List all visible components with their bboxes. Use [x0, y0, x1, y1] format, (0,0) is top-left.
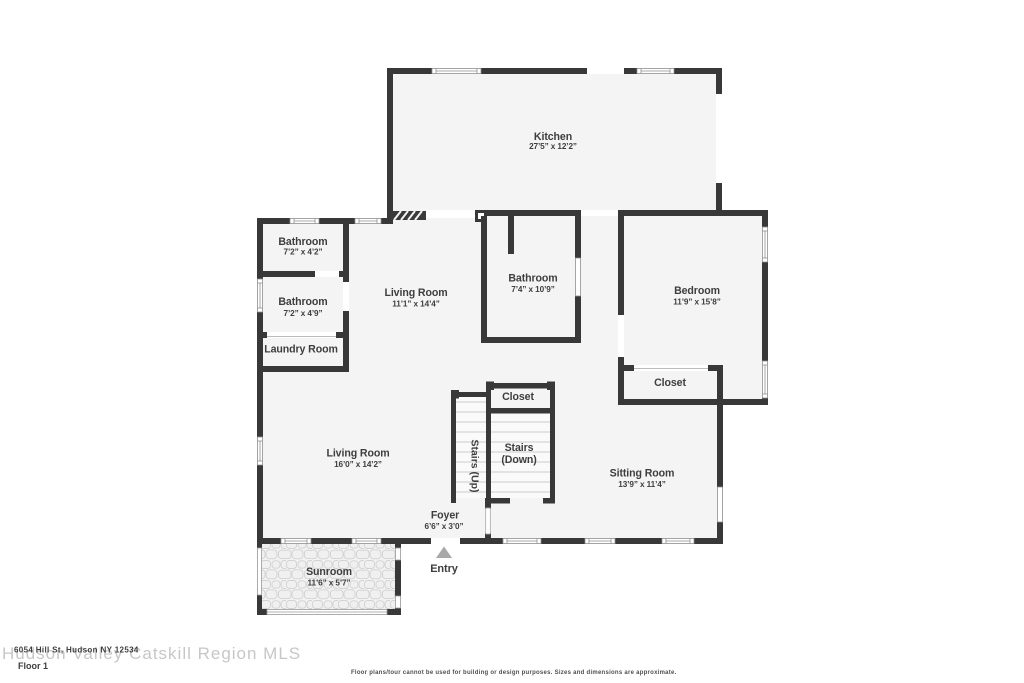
svg-text:Floor 1: Floor 1 — [18, 661, 48, 671]
svg-text:11’9” x 15’8”: 11’9” x 15’8” — [673, 298, 720, 307]
svg-text:13’9” x 11’4”: 13’9” x 11’4” — [618, 480, 665, 489]
svg-text:11’1” x 14’4”: 11’1” x 14’4” — [392, 300, 439, 309]
svg-text:6’6” x 3’0”: 6’6” x 3’0” — [425, 522, 464, 531]
svg-text:Bathroom: Bathroom — [508, 273, 557, 285]
svg-text:Living Room: Living Room — [384, 287, 447, 299]
svg-text:7’2” x 4’9”: 7’2” x 4’9” — [284, 309, 323, 318]
svg-text:7’2” x 4’2”: 7’2” x 4’2” — [284, 248, 323, 257]
svg-text:Stairs (Up): Stairs (Up) — [469, 439, 481, 492]
svg-text:Bathroom: Bathroom — [278, 296, 327, 308]
svg-text:Bathroom: Bathroom — [278, 236, 327, 248]
svg-text:Bedroom: Bedroom — [674, 285, 720, 297]
svg-text:Closet: Closet — [654, 377, 686, 389]
svg-text:Entry: Entry — [430, 563, 459, 575]
svg-text:Floor plans/tour cannot be use: Floor plans/tour cannot be used for buil… — [351, 670, 677, 676]
svg-text:Sitting Room: Sitting Room — [610, 468, 675, 480]
svg-text:Foyer: Foyer — [431, 510, 459, 522]
svg-text:Stairs: Stairs — [505, 442, 534, 454]
svg-text:Laundry Room: Laundry Room — [264, 344, 338, 356]
svg-text:(Down): (Down) — [501, 454, 536, 466]
svg-text:Closet: Closet — [502, 391, 534, 403]
svg-text:6054 Hill St, Hudson NY 12534: 6054 Hill St, Hudson NY 12534 — [14, 646, 139, 655]
svg-text:27’5” x 12’2”: 27’5” x 12’2” — [529, 142, 577, 151]
svg-text:Living Room: Living Room — [326, 448, 389, 460]
svg-text:11’6” x 5’7”: 11’6” x 5’7” — [308, 579, 351, 588]
svg-text:Sunroom: Sunroom — [306, 566, 352, 578]
svg-text:16’0” x 14’2”: 16’0” x 14’2” — [334, 460, 382, 469]
svg-text:7’4” x 10’9”: 7’4” x 10’9” — [511, 285, 554, 294]
